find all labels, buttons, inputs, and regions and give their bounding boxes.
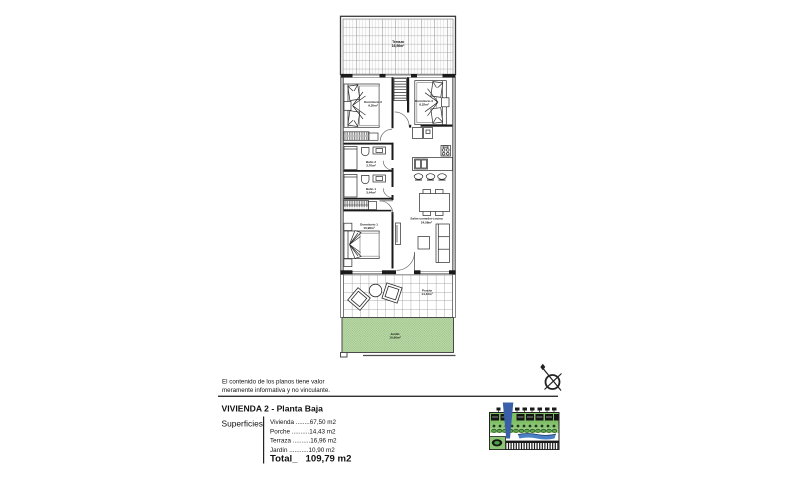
svg-text:8,32m²: 8,32m²: [419, 103, 429, 107]
svg-text:9,35m²: 9,35m²: [368, 104, 378, 108]
svg-text:10,98m²: 10,98m²: [363, 226, 374, 230]
svg-text:meramente informativa y no vin: meramente informativa y no vinculante.: [222, 387, 330, 394]
svg-text:Vivienda ........67,50 m2: Vivienda ........67,50 m2: [270, 419, 337, 426]
svg-text:16,96m²: 16,96m²: [392, 44, 405, 48]
svg-text:Total_ 109,79 m2: Total_ 109,79 m2: [270, 454, 351, 465]
svg-text:VIVIENDA 2 - Planta Baja: VIVIENDA 2 - Planta Baja: [222, 404, 324, 414]
svg-text:Superficies: Superficies: [222, 419, 263, 429]
svg-text:10,90m²: 10,90m²: [389, 336, 400, 340]
svg-text:14,43m²: 14,43m²: [421, 292, 432, 296]
svg-text:24,58m²: 24,58m²: [421, 220, 432, 224]
svg-text:Porche ..........14,43 m2: Porche ..........14,43 m2: [270, 428, 336, 435]
svg-text:3,44m²: 3,44m²: [366, 191, 376, 195]
svg-text:Terraza ..........16,96 m2: Terraza ..........16,96 m2: [270, 438, 337, 445]
svg-text:3,70m²: 3,70m²: [366, 164, 376, 168]
svg-text:El contenido de los planos tie: El contenido de los planos tiene valor: [222, 378, 325, 385]
